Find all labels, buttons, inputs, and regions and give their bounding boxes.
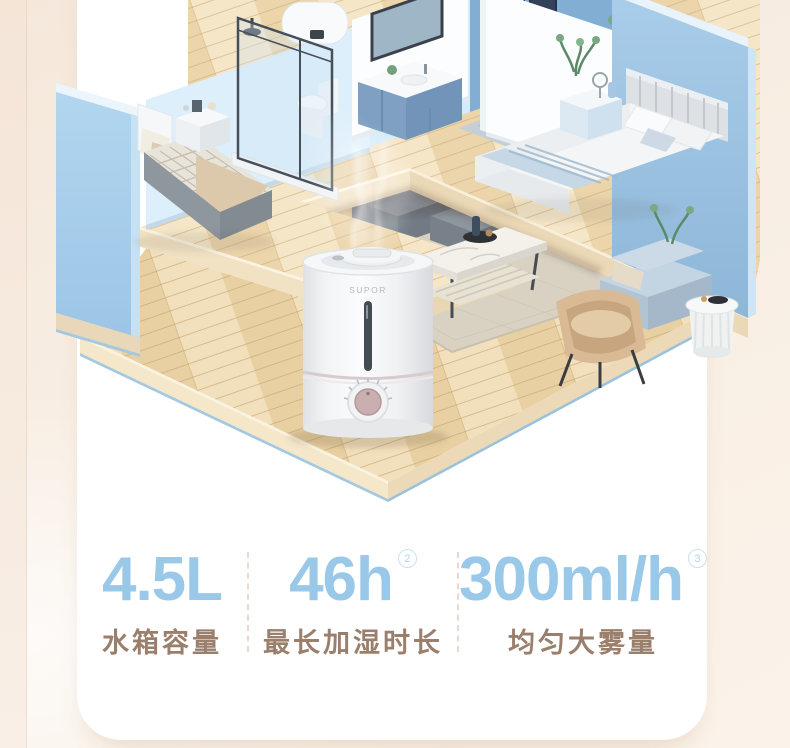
stats-row: 4.5L 水箱容量 46h2 最长加湿时长 300ml/h3 均匀大雾量	[77, 548, 707, 658]
footnote-superscript: 3	[688, 549, 707, 568]
footnote-superscript: 2	[398, 549, 417, 568]
stat-label: 最长加湿时长	[263, 621, 443, 660]
stat-humidify-duration: 46h2 最长加湿时长	[249, 548, 457, 660]
left-outer-wall	[56, 83, 140, 357]
stat-label: 均匀大雾量	[508, 621, 658, 660]
stat-value: 46h2	[289, 548, 417, 612]
stat-mist-output: 300ml/h3 均匀大雾量	[459, 548, 707, 660]
stat-tank-capacity: 4.5L 水箱容量	[77, 548, 247, 660]
stat-value: 4.5L	[102, 548, 222, 612]
isometric-room-illustration: SUPOR	[0, 0, 790, 530]
pedestal-side-table	[686, 296, 738, 358]
water-level-window	[364, 301, 372, 371]
supor-logo: SUPOR	[349, 285, 387, 295]
stat-value: 300ml/h3	[459, 548, 707, 612]
stat-label: 水箱容量	[102, 621, 222, 660]
